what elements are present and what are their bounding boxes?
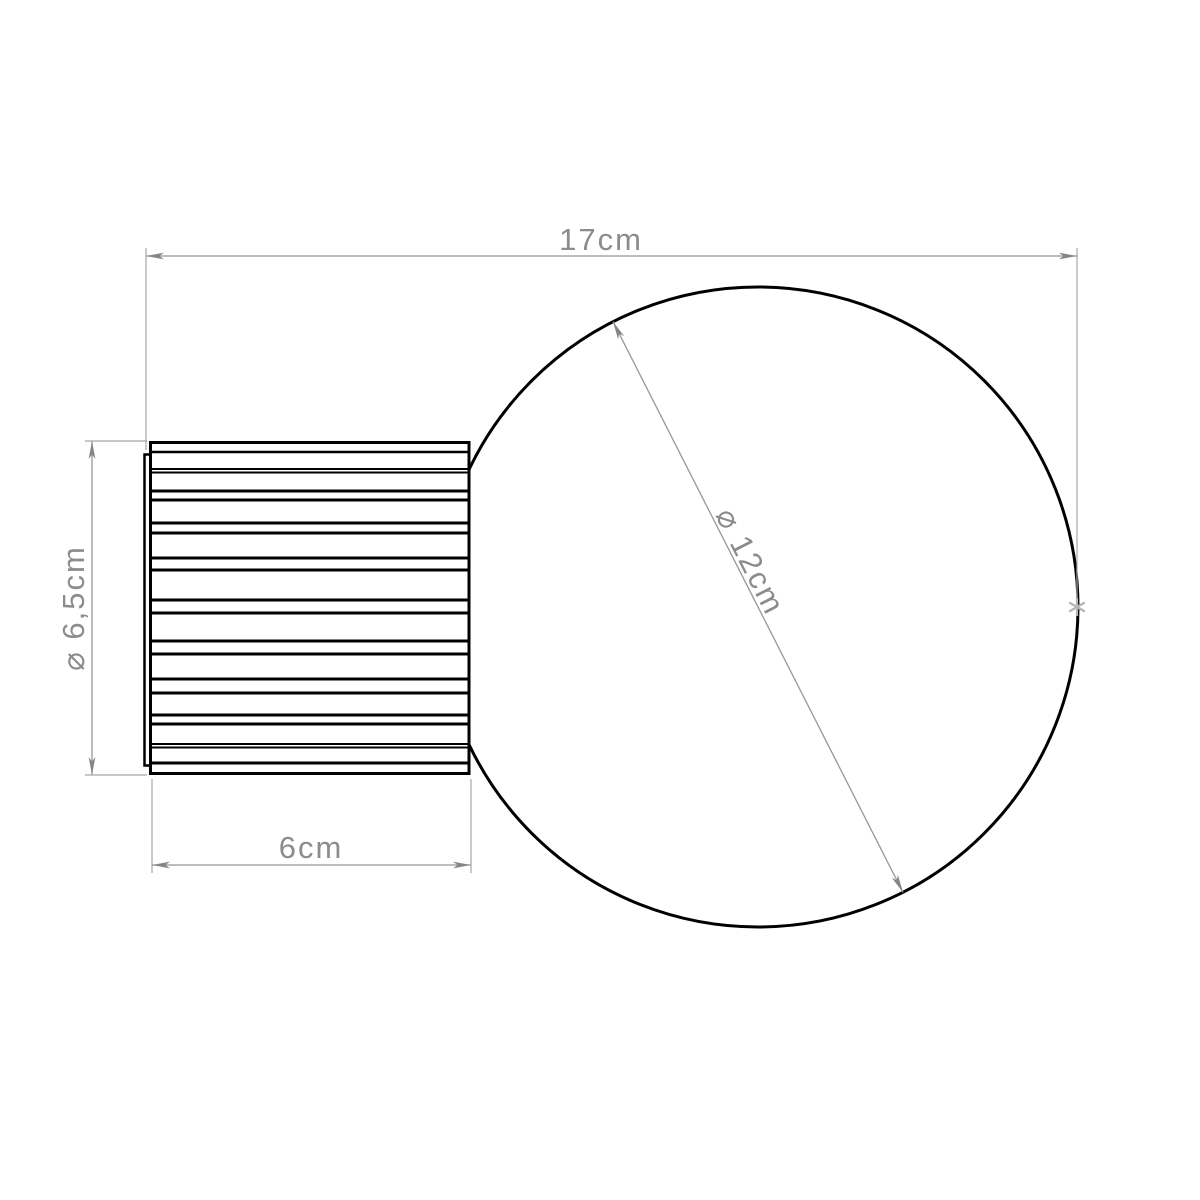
technical-drawing-page: 17cm ⌀ 6,5cm 6cm ⌀ 12cm <box>0 0 1200 1200</box>
dimension-globe-diameter: ⌀ 12cm <box>613 322 903 893</box>
overall-width-label: 17cm <box>559 222 643 257</box>
tangent-point-marker <box>1069 598 1085 616</box>
globe-diameter-label: ⌀ 12cm <box>709 502 792 620</box>
lamp-dimension-drawing: 17cm ⌀ 6,5cm 6cm ⌀ 12cm <box>0 0 1200 1200</box>
base-length-label: 6cm <box>279 830 344 865</box>
dimension-base-length: 6cm <box>152 779 471 873</box>
dimension-base-diameter: ⌀ 6,5cm <box>56 441 147 775</box>
base-diameter-label: ⌀ 6,5cm <box>56 545 91 671</box>
base-body-group <box>145 443 470 774</box>
